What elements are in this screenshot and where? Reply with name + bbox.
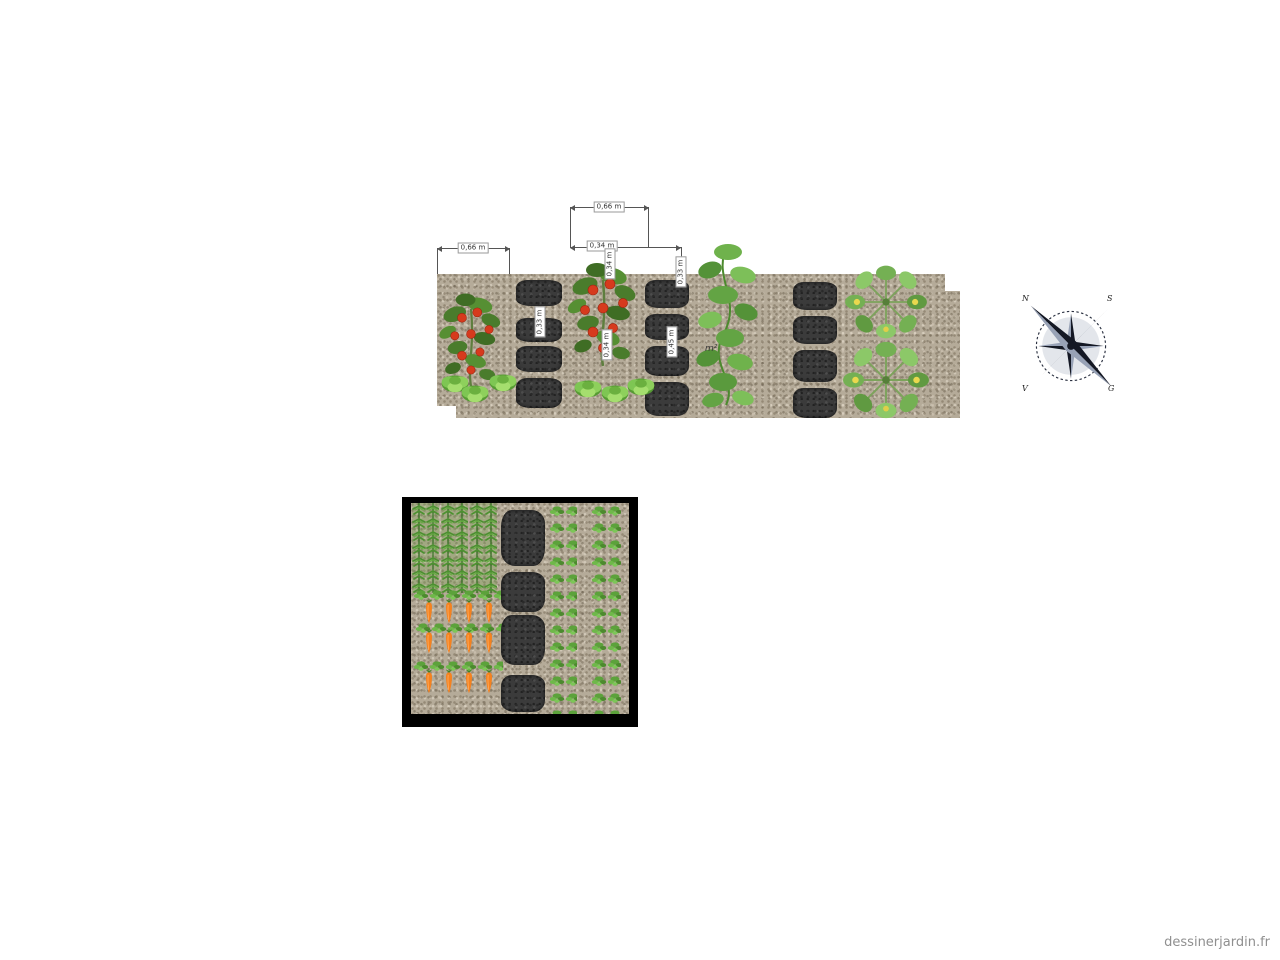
carrot-foliage-row xyxy=(412,503,439,593)
paving-stone xyxy=(793,282,837,310)
lettuce xyxy=(460,382,490,404)
compass-label-nw: N xyxy=(1022,294,1029,303)
carrot xyxy=(484,668,494,695)
carrot xyxy=(464,668,474,695)
paving-stone xyxy=(516,378,562,408)
dimension-extension-line xyxy=(437,248,438,274)
carrot xyxy=(484,598,494,625)
seedling-row xyxy=(591,503,621,714)
paving-stone xyxy=(793,350,837,382)
carrot xyxy=(464,598,474,625)
carrot xyxy=(484,628,494,655)
carrot xyxy=(444,668,454,695)
lettuce xyxy=(573,377,603,399)
bed-edge-notch xyxy=(437,406,456,418)
square-plot xyxy=(402,497,638,727)
compass-label-se: G xyxy=(1108,384,1114,393)
compass-label-sw: V xyxy=(1022,384,1028,393)
paving-stone xyxy=(501,615,545,665)
seedling-row xyxy=(549,503,577,714)
paving-stone xyxy=(501,572,545,612)
carrot xyxy=(424,598,434,625)
plot-soil xyxy=(411,503,629,714)
dimension-extension-line xyxy=(648,207,649,247)
carrot xyxy=(444,598,454,625)
carrot xyxy=(424,668,434,695)
cucumber-vines xyxy=(688,240,766,412)
paving-stone xyxy=(793,316,837,344)
area-label: m² xyxy=(705,344,717,354)
garden-plan-canvas: 0,66 m 0,66 m 0,34 m 0,33 m 0,34 m 0,34 … xyxy=(0,0,1280,960)
compass-rose-icon xyxy=(1023,298,1119,394)
watermark: dessinerjardin.fr xyxy=(1164,935,1270,950)
paving-stone xyxy=(501,510,545,566)
paving-stone xyxy=(516,346,562,372)
lettuce xyxy=(488,371,518,393)
dimension-label: 0,66 m xyxy=(594,202,625,213)
carrot-foliage-row xyxy=(470,503,497,593)
paving-stone xyxy=(793,388,837,418)
carrot xyxy=(464,628,474,655)
courgette-plant xyxy=(840,338,932,422)
dimension-extension-line xyxy=(509,248,510,274)
bed-edge-notch xyxy=(945,274,960,291)
dimension-label: 0,33 m xyxy=(676,257,687,288)
compass-label-ne: S xyxy=(1107,294,1112,303)
dimension-label: 0,66 m xyxy=(458,243,489,254)
carrot xyxy=(444,628,454,655)
carrot xyxy=(424,628,434,655)
dimension-label: 0,34 m xyxy=(602,330,613,361)
dimension-label: 0,34 m xyxy=(605,249,616,280)
carrot-foliage-row xyxy=(441,503,468,593)
dimension-label: 0,33 m xyxy=(535,307,546,338)
courgette-plant xyxy=(840,262,932,342)
lettuce xyxy=(626,375,656,397)
dimension-extension-line xyxy=(570,207,571,247)
paving-stone xyxy=(516,280,562,306)
paving-stone xyxy=(501,675,545,712)
dimension-label: 0,45 m xyxy=(667,327,678,358)
